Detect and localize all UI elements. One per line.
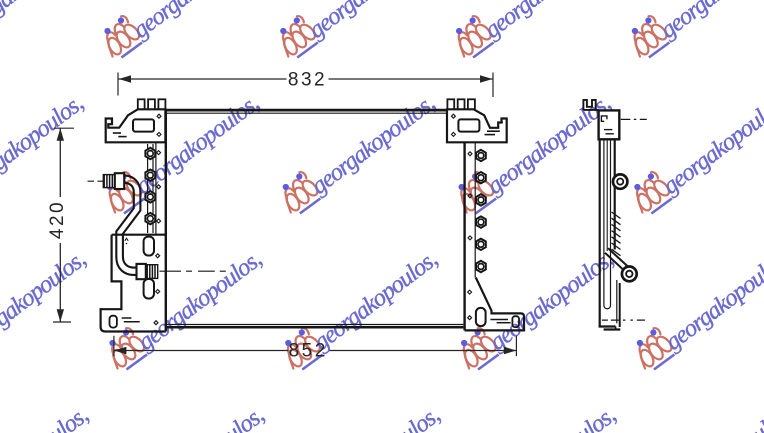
svg-text:852: 852 (289, 341, 328, 362)
svg-text:832: 832 (288, 69, 327, 90)
svg-text:420: 420 (47, 200, 68, 239)
